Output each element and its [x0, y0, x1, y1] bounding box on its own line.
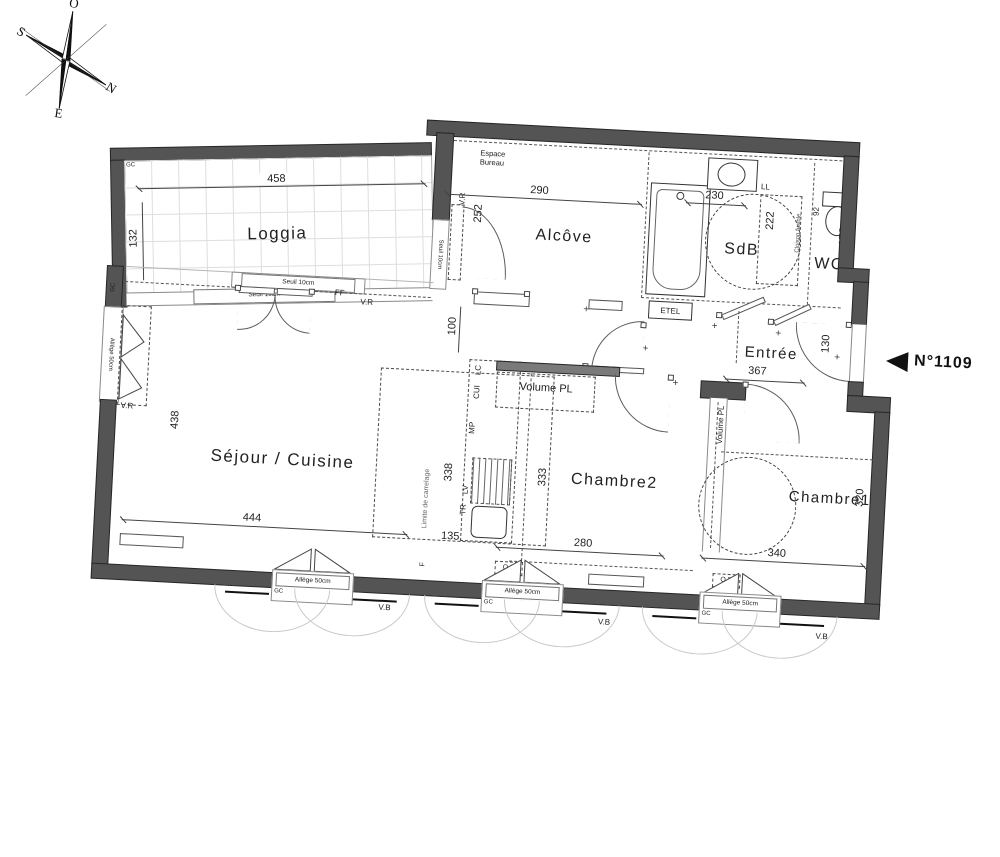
room-label-sejour: Séjour / Cuisine	[190, 445, 376, 475]
etel-box: ETEL	[648, 300, 693, 320]
left-window-vr: V.R	[120, 401, 133, 411]
hall-shelf	[588, 299, 622, 311]
entree-width-dim: 367	[733, 364, 782, 378]
kitchen-mp: MP	[467, 422, 477, 434]
alcove-depth-dim: 252	[472, 204, 485, 223]
hall-door-hinge-top	[640, 322, 646, 328]
alcove-bench	[473, 291, 530, 307]
loggia-width-dim: 458	[251, 172, 301, 185]
window2-vb: V.B	[598, 617, 611, 627]
wc-width-dim: 92	[811, 207, 820, 216]
loggia-alcove-wall	[433, 133, 453, 220]
bench-end-right	[524, 291, 530, 297]
sdb-door-hinge	[716, 312, 722, 318]
sejour-vr-label: V.R	[360, 297, 373, 307]
room-label-alcove: Alcôve	[494, 224, 635, 249]
kitchen-width-dim: 135	[432, 529, 469, 543]
kitchen-sink	[470, 505, 508, 539]
ch1-depth-dim: 320	[854, 488, 867, 507]
right-wall-step2	[847, 396, 890, 413]
kitchen-vent: F	[419, 562, 426, 567]
opening-100-line	[458, 307, 461, 353]
door-axis-mark-5: +	[642, 343, 648, 354]
room-label-chambre2: Chambre2	[544, 469, 685, 494]
floor-plan: GC 458 132 Loggia Seuil 10cm Espace Bure…	[70, 87, 1000, 694]
sdb-wc-partition	[807, 163, 815, 305]
entrance-door-arc	[793, 322, 853, 382]
etel-label: ETEL	[660, 306, 680, 316]
ch1-door-hinge	[742, 381, 748, 387]
kitchen-counter-hatch	[470, 457, 512, 505]
kitchen-depth-dim: 338	[442, 463, 455, 482]
alcove-width-dim: 290	[514, 183, 565, 198]
compass-e: E	[54, 105, 64, 120]
room-label-loggia: Loggia	[197, 222, 357, 245]
kitchen-lc: LC	[473, 365, 483, 376]
ch2-depth-dim: 333	[536, 468, 549, 487]
hall-door-arc	[591, 319, 645, 373]
kitchen-tr: TR	[458, 504, 468, 515]
window3-vb: V.B	[815, 632, 828, 642]
wc-door-hinge	[768, 319, 774, 325]
sejour-width-dim: 444	[227, 511, 278, 526]
window1-vb: V.B	[378, 603, 391, 613]
door-axis-mark-4: +	[583, 304, 589, 315]
right-wall-wc	[839, 156, 859, 269]
ch2-width-dim: 280	[558, 536, 609, 551]
french-door-arc-left	[237, 293, 276, 332]
ch2-door-hinge	[668, 375, 674, 381]
ch1-door-arc	[743, 384, 803, 444]
entrance-door-opening	[849, 324, 867, 383]
right-wall-step1	[838, 268, 869, 283]
loggia-gc-label: GC	[126, 162, 135, 168]
left-wall-lower	[92, 400, 116, 565]
french-door-hinge-left	[235, 285, 241, 291]
left-wall-gc: GC	[110, 283, 116, 292]
sejour-depth-dim: 438	[169, 410, 182, 429]
ff-label: FF	[335, 288, 345, 297]
window1-swing-right	[292, 588, 410, 639]
ch1-width-dim: 340	[752, 546, 803, 561]
opening-100-dim: 100	[446, 317, 459, 336]
kitchen-lv: LV	[461, 485, 470, 495]
door-axis-mark-1: +	[711, 321, 717, 332]
kitchen-cui: CUI	[472, 385, 482, 399]
door-axis-mark-3: +	[834, 352, 840, 363]
bottom-wall-1	[92, 564, 272, 587]
left-window-dash	[117, 305, 152, 406]
espace-bureau-label: Espace Bureau	[480, 149, 527, 169]
washer-label: LL	[761, 182, 770, 191]
left-window-allege: Allège 50cm	[107, 338, 115, 371]
ch2-radiator	[588, 574, 644, 588]
compass-o: O	[68, 0, 79, 11]
loggia-depth-dim: 132	[127, 229, 139, 248]
bench-end-left	[472, 288, 478, 294]
door-axis-mark-2: +	[775, 328, 781, 339]
right-wall-entry-lower	[848, 382, 863, 397]
ch2-door-arc	[612, 374, 671, 433]
french-door-arc-right	[273, 295, 312, 334]
right-wall-entry-upper	[852, 282, 868, 325]
sdb-door-leaf	[721, 297, 766, 320]
alcove-seuil-label: Seuil 10cm	[436, 239, 444, 269]
unit-number: N°1109	[914, 352, 974, 373]
unit-arrow-icon	[885, 351, 908, 372]
sejour-radiator	[119, 533, 184, 548]
